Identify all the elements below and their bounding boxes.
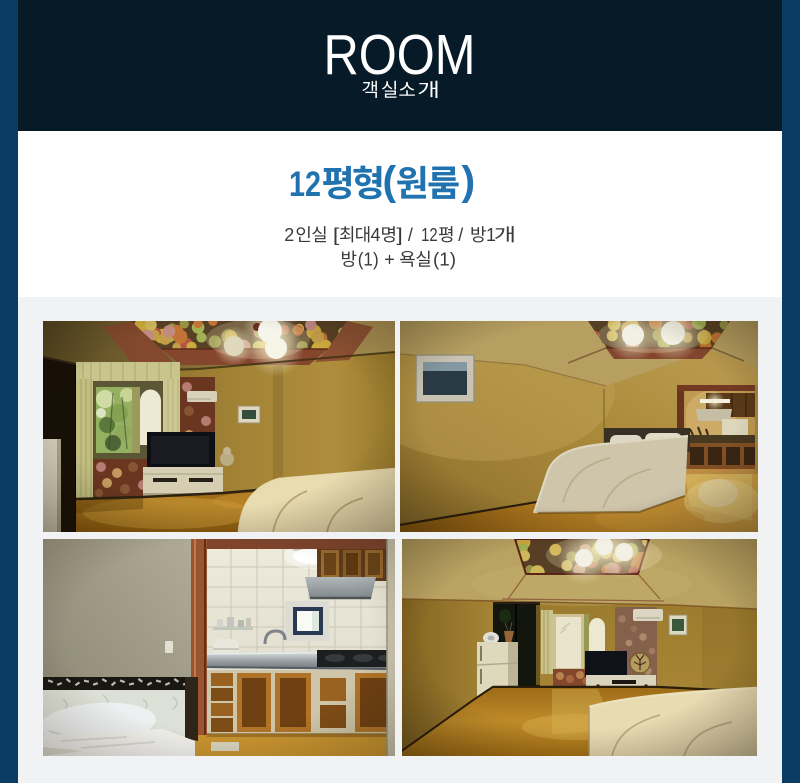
svg-text:/: /: [408, 225, 413, 245]
svg-text:(1): (1): [433, 250, 456, 270]
svg-text:(: (: [383, 158, 397, 204]
svg-text:12: 12: [421, 225, 438, 245]
svg-text:(1): (1): [358, 250, 379, 270]
svg-text:]: ]: [396, 225, 402, 245]
svg-text:12: 12: [289, 165, 321, 204]
svg-text:1: 1: [486, 225, 496, 245]
svg-text:2: 2: [284, 225, 294, 245]
svg-text:+: +: [384, 250, 395, 270]
svg-text:ROOM: ROOM: [324, 23, 476, 87]
svg-text:4: 4: [371, 225, 381, 245]
svg-text:/: /: [458, 225, 463, 245]
svg-text:): ): [462, 158, 476, 204]
svg-text:[: [: [333, 225, 339, 245]
